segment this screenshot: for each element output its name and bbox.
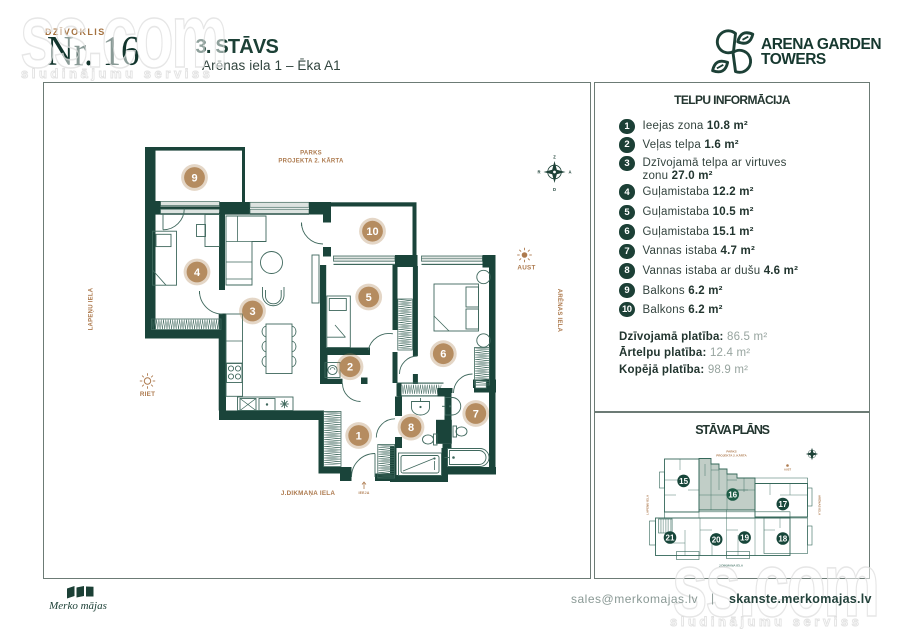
svg-text:Z: Z	[553, 155, 556, 160]
svg-text:4: 4	[194, 267, 201, 279]
svg-text:Merko mājas: Merko mājas	[48, 600, 107, 612]
svg-text:7: 7	[473, 408, 479, 420]
svg-text:10: 10	[366, 226, 378, 238]
svg-text:D: D	[553, 187, 556, 192]
svg-text:3: 3	[249, 306, 255, 318]
svg-text:ARĒNAS IELA: ARĒNAS IELA	[818, 495, 822, 516]
svg-text:RIET: RIET	[140, 391, 155, 398]
svg-text:J.DIKMAŅA IELA: J.DIKMAŅA IELA	[281, 490, 336, 497]
svg-text:17: 17	[778, 500, 787, 509]
svg-text:PROJEKTA 2. KĀRTA: PROJEKTA 2. KĀRTA	[716, 454, 747, 458]
svg-text:AUST: AUST	[784, 468, 791, 472]
svg-text:A: A	[568, 170, 571, 175]
svg-text:R: R	[537, 170, 540, 175]
svg-text:5: 5	[366, 292, 372, 304]
svg-text:8: 8	[408, 422, 414, 434]
svg-text:2: 2	[347, 362, 353, 374]
svg-text:16: 16	[728, 490, 737, 499]
svg-text:IEEJA: IEEJA	[358, 491, 369, 495]
svg-text:21: 21	[666, 533, 675, 542]
svg-text:1: 1	[356, 430, 362, 442]
svg-text:LAPEŅU IELA: LAPEŅU IELA	[89, 287, 95, 330]
svg-text:15: 15	[679, 477, 688, 486]
svg-text:LAPEŅU IELA: LAPEŅU IELA	[646, 494, 650, 515]
svg-text:6: 6	[440, 349, 446, 361]
svg-text:ARĒNAS IELA: ARĒNAS IELA	[556, 289, 563, 333]
svg-text:PROJEKTA 2. KĀRTA: PROJEKTA 2. KĀRTA	[278, 157, 344, 164]
svg-text:20: 20	[712, 535, 721, 544]
svg-text:18: 18	[778, 534, 787, 543]
svg-text:AUST: AUST	[517, 265, 535, 272]
svg-text:19: 19	[740, 533, 749, 542]
svg-text:9: 9	[191, 172, 197, 184]
svg-text:PARKS: PARKS	[300, 151, 322, 157]
svg-text:J.DIKMAŅA IELA: J.DIKMAŅA IELA	[719, 564, 744, 568]
